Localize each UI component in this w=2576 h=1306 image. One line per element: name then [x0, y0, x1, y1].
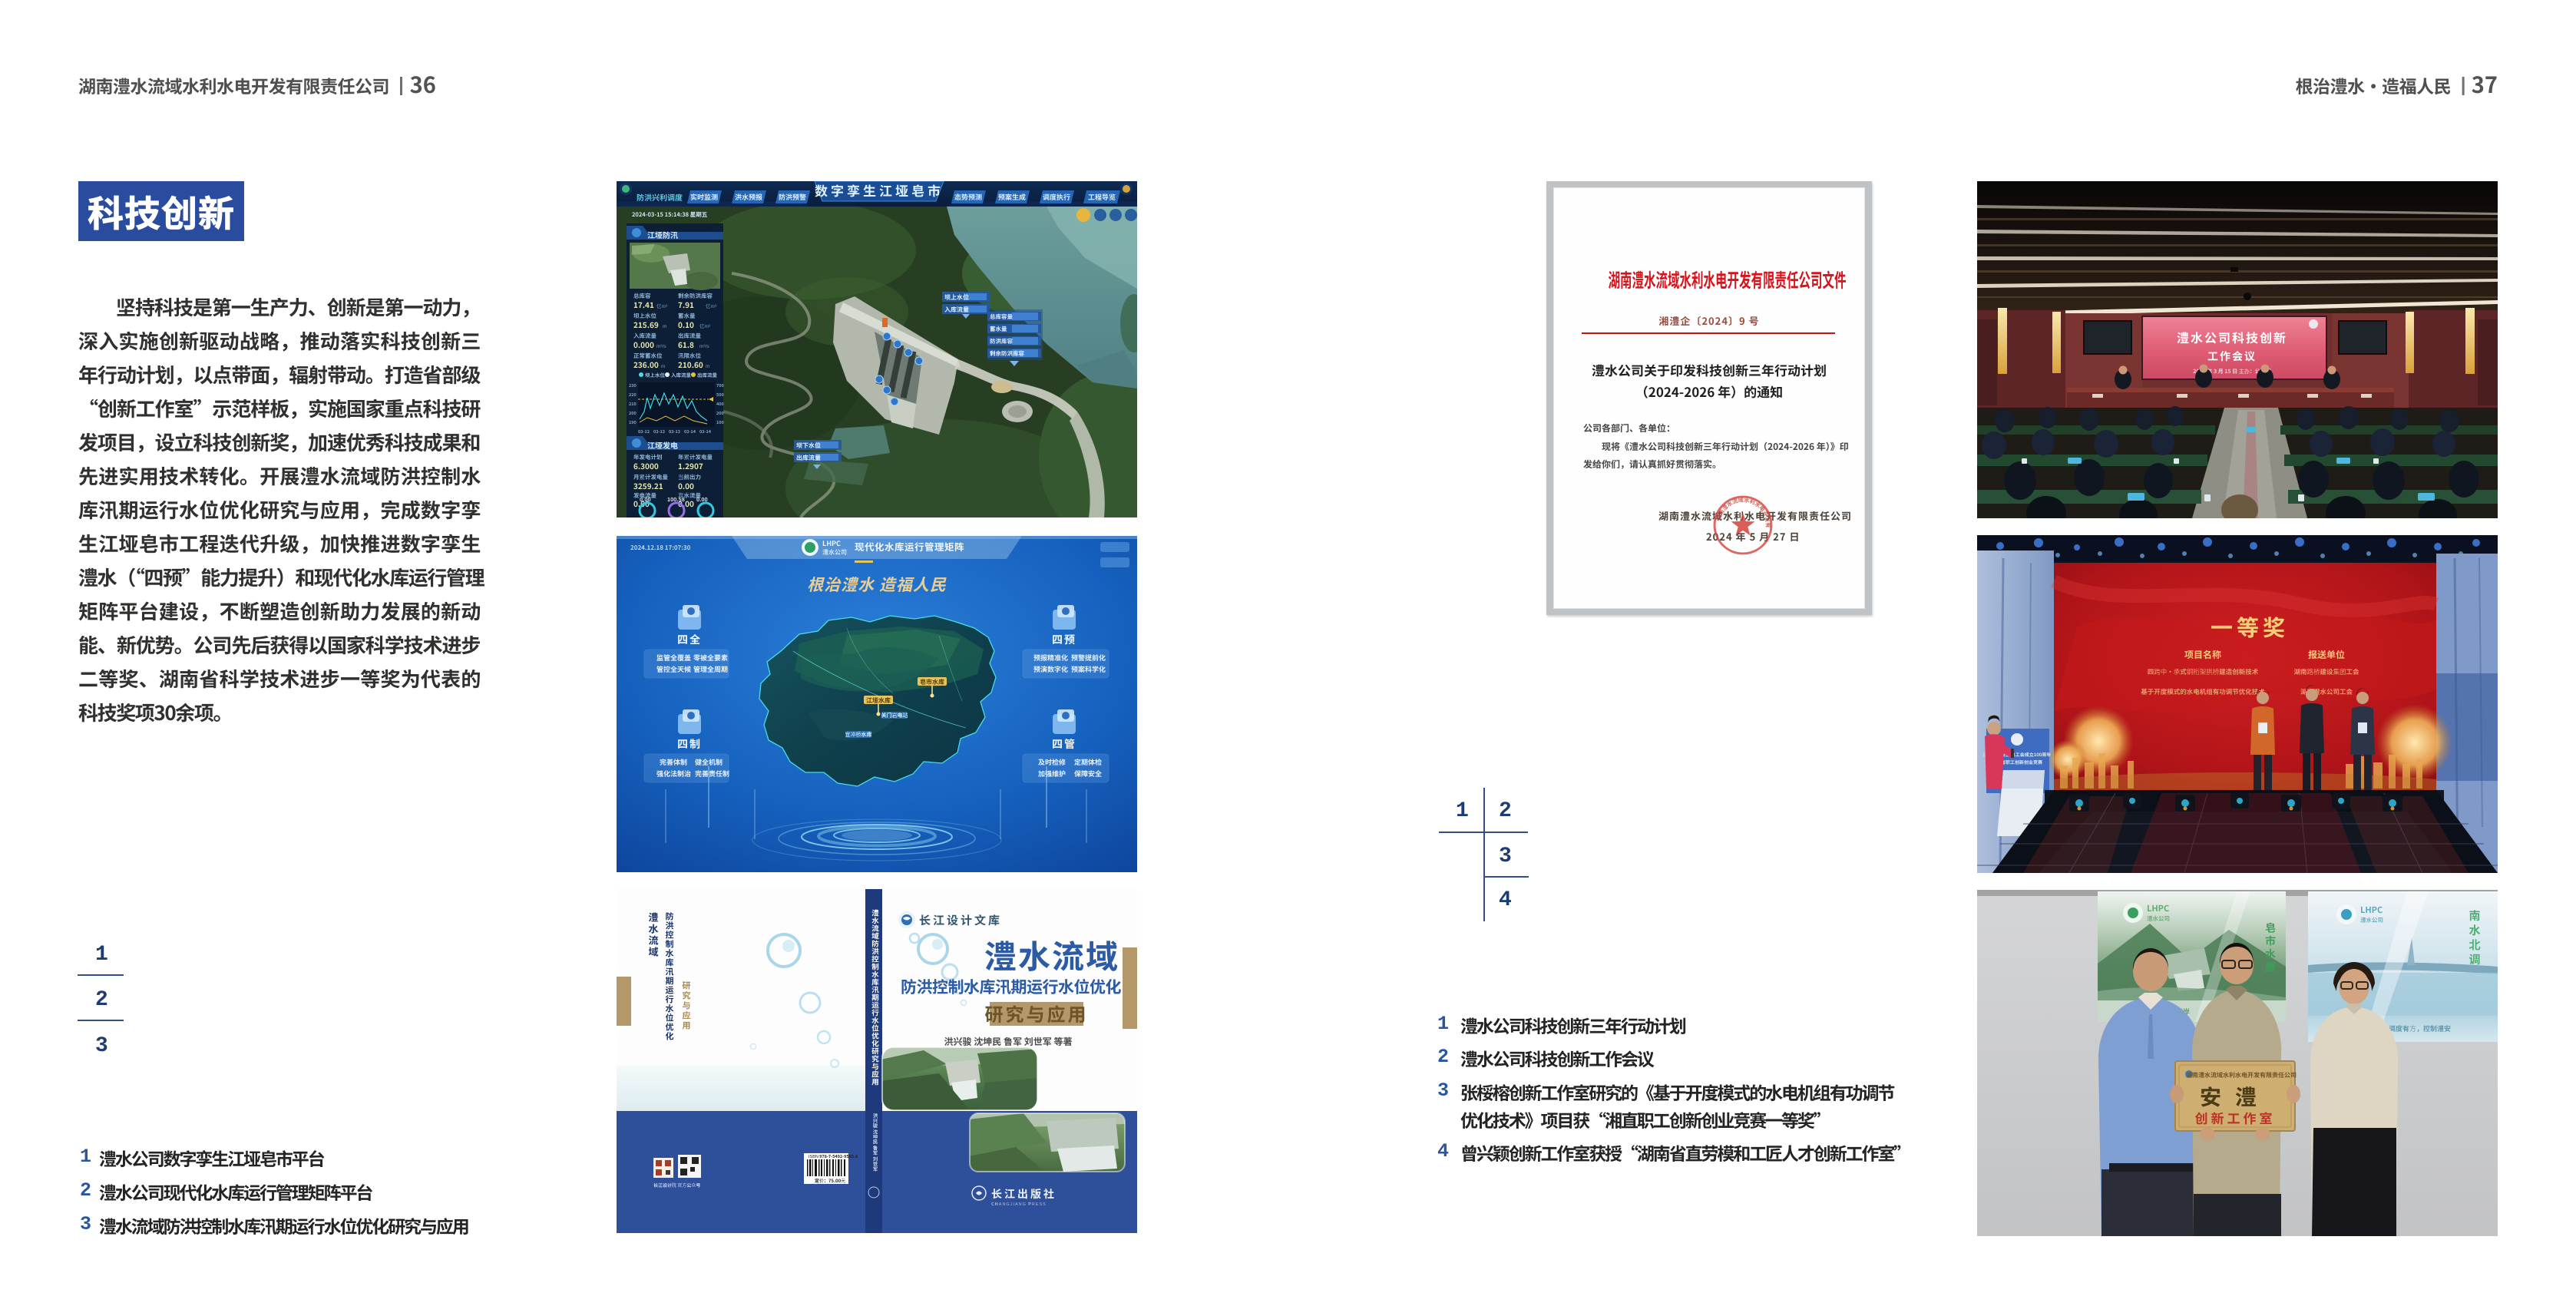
- svg-text:湖南澧水流域水利水电开发有限责任公司: 湖南澧水流域水利水电开发有限责任公司: [2186, 1071, 2297, 1080]
- svg-text:CHANGJIANG PRESS: CHANGJIANG PRESS: [991, 1201, 1047, 1207]
- svg-text:现代化水库运行管理矩阵: 现代化水库运行管理矩阵: [855, 539, 964, 554]
- svg-text:出库流量: 出库流量: [697, 371, 718, 379]
- svg-text:预案生成: 预案生成: [998, 192, 1026, 202]
- svg-text:400: 400: [716, 401, 724, 407]
- svg-text:宜冲桥水库: 宜冲桥水库: [845, 731, 872, 739]
- svg-text:态势预测: 态势预测: [954, 192, 982, 202]
- svg-text:澧水流域防洪控制水库汛期运行水位优化研究与应用: 澧水流域防洪控制水库汛期运行水位优化研究与应用: [870, 908, 881, 1086]
- svg-text:调度有方，控制澧安: 调度有方，控制澧安: [2389, 1023, 2451, 1033]
- svg-text:湖南路桥建设集团工会: 湖南路桥建设集团工会: [2293, 667, 2359, 676]
- svg-text:100: 100: [716, 419, 724, 425]
- svg-text:03-14: 03-14: [684, 428, 696, 435]
- svg-text:四制: 四制: [677, 736, 702, 752]
- svg-text:洪水预报: 洪水预报: [735, 192, 762, 202]
- svg-text:保障安全: 保障安全: [1074, 769, 1102, 779]
- svg-text:关门岩电站: 关门岩电站: [881, 712, 908, 719]
- svg-text:调度执行: 调度执行: [1043, 192, 1070, 202]
- svg-text:实时监测: 实时监测: [690, 192, 718, 202]
- svg-text:工程导览: 工程导览: [1088, 192, 1116, 202]
- svg-text:研究与应用: 研究与应用: [680, 981, 693, 1031]
- svg-text:入库流量: 入库流量: [671, 371, 692, 379]
- svg-text:剩余防洪库容: 剩余防洪库容: [990, 349, 1024, 358]
- svg-text:江垭防汛: 江垭防汛: [647, 229, 678, 240]
- svg-text:零被全要素: 零被全要素: [693, 653, 728, 663]
- svg-text:防洪兴利调度: 防洪兴利调度: [637, 191, 683, 203]
- svg-text:200: 200: [716, 410, 724, 416]
- svg-text:洪兴骏 沈坤民 鲁军 刘世军 等著: 洪兴骏 沈坤民 鲁军 刘世军 等著: [944, 1035, 1073, 1048]
- svg-text:210.60: 210.60: [678, 359, 703, 370]
- svg-text:预案科学化: 预案科学化: [1071, 664, 1106, 674]
- svg-text:LHPC: LHPC: [822, 538, 841, 548]
- svg-text:防洪预警: 防洪预警: [779, 192, 806, 202]
- svg-text:0.000: 0.000: [633, 339, 654, 350]
- svg-text:澧水公司科技创新: 澧水公司科技创新: [2177, 328, 2287, 346]
- svg-text:四管: 四管: [1052, 736, 1076, 752]
- svg-text:03-13: 03-13: [653, 428, 665, 435]
- svg-text:根治澧水 造福人民: 根治澧水 造福人民: [807, 573, 947, 596]
- svg-text:长江出版社: 长江出版社: [991, 1186, 1057, 1202]
- svg-text:完善体制: 完善体制: [660, 757, 687, 767]
- svg-text:定价：75.00元: 定价：75.00元: [815, 1177, 845, 1184]
- svg-text:蓄水量: 蓄水量: [990, 325, 1007, 333]
- svg-text:安澧: 安澧: [2200, 1081, 2270, 1112]
- svg-text:完善责任制: 完善责任制: [695, 769, 729, 779]
- svg-text:预演数字化: 预演数字化: [1033, 664, 1068, 674]
- svg-text:210: 210: [629, 401, 637, 407]
- svg-text:3259.21: 3259.21: [633, 480, 663, 491]
- svg-text:工作会议: 工作会议: [2207, 349, 2257, 364]
- svg-text:m³/s: m³/s: [656, 342, 666, 349]
- svg-text:出库流量: 出库流量: [796, 454, 821, 462]
- svg-text:澧水流域: 澧水流域: [984, 931, 1119, 978]
- svg-text:坝上水位: 坝上水位: [645, 371, 666, 379]
- svg-text:一等奖: 一等奖: [2211, 610, 2289, 643]
- svg-text:项目名称: 项目名称: [2184, 648, 2221, 661]
- svg-text:江垭水库: 江垭水库: [866, 696, 891, 705]
- svg-text:澧水公司: 澧水公司: [822, 548, 847, 557]
- svg-text:强化法制治: 强化法制治: [656, 769, 691, 779]
- svg-text:17.41: 17.41: [633, 299, 654, 310]
- svg-text:防洪控制水库汛期运行水位优化: 防洪控制水库汛期运行水位优化: [901, 975, 1121, 998]
- svg-text:亿m³: 亿m³: [706, 302, 717, 309]
- svg-text:长江设计文库: 长江设计文库: [919, 912, 1002, 928]
- svg-text:四预: 四预: [1052, 632, 1076, 647]
- svg-text:0.10: 0.10: [678, 319, 694, 330]
- svg-text:预警提前化: 预警提前化: [1071, 653, 1106, 663]
- svg-text:0.00: 0.00: [678, 480, 694, 491]
- svg-text:数字孪生江垭皂市: 数字孪生江垭皂市: [815, 181, 944, 200]
- svg-text:215.69: 215.69: [633, 319, 659, 330]
- svg-text:坝上水位: 坝上水位: [944, 293, 969, 302]
- svg-text:6.3000: 6.3000: [633, 460, 659, 471]
- svg-text:7.91: 7.91: [678, 299, 694, 310]
- svg-text:防洪控制水库汛期运行水位优化: 防洪控制水库汛期运行水位优化: [663, 912, 676, 1041]
- svg-text:61.8: 61.8: [678, 339, 694, 350]
- svg-text:预报精准化: 预报精准化: [1033, 653, 1068, 663]
- svg-text:监管全覆盖: 监管全覆盖: [656, 653, 691, 663]
- svg-text:四跨中·承式钢桁架拱桥建造创新技术: 四跨中·承式钢桁架拱桥建造创新技术: [2148, 667, 2259, 676]
- svg-text:皂市水库: 皂市水库: [920, 678, 944, 686]
- svg-text:四全: 四全: [677, 632, 702, 647]
- svg-text:LHPC: LHPC: [2147, 902, 2169, 914]
- svg-text:健全机制: 健全机制: [695, 757, 723, 767]
- svg-text:LHPC: LHPC: [2360, 904, 2383, 916]
- svg-text:亿m³: 亿m³: [699, 322, 711, 329]
- svg-text:研究与应用: 研究与应用: [985, 1000, 1089, 1027]
- svg-text:南水北调: 南水北调: [2467, 910, 2483, 968]
- svg-text:管理全周期: 管理全周期: [693, 664, 728, 674]
- svg-text:03-14: 03-14: [699, 428, 712, 435]
- svg-text:500: 500: [716, 392, 724, 398]
- svg-text:江垭发电: 江垭发电: [647, 439, 678, 451]
- svg-text:2024-03-15 15:14:38 星期五: 2024-03-15 15:14:38 星期五: [632, 210, 708, 219]
- svg-text:入库流量: 入库流量: [944, 306, 969, 314]
- svg-text:澧水流域: 澧水流域: [646, 911, 661, 958]
- svg-text:700: 700: [716, 382, 724, 388]
- svg-text:澧水公司: 澧水公司: [2147, 914, 2170, 923]
- svg-text:创新工作室: 创新工作室: [2195, 1108, 2276, 1127]
- svg-text:1.2907: 1.2907: [678, 460, 703, 471]
- svg-text:防洪库容: 防洪库容: [990, 337, 1013, 346]
- svg-text:220: 220: [629, 392, 637, 398]
- svg-text:230: 230: [629, 382, 637, 388]
- svg-text:236.00: 236.00: [633, 359, 659, 370]
- svg-text:m³/s: m³/s: [699, 342, 709, 349]
- svg-text:m: m: [663, 322, 666, 329]
- svg-text:190: 190: [629, 419, 637, 425]
- svg-text:基于开度模式的水电机组有功调节优化技术: 基于开度模式的水电机组有功调节优化技术: [2141, 687, 2265, 696]
- svg-text:及时检修: 及时检修: [1038, 757, 1066, 767]
- svg-text:m: m: [661, 362, 665, 369]
- svg-text:m: m: [706, 362, 709, 369]
- svg-text:亿m³: 亿m³: [656, 302, 668, 309]
- svg-text:澧水公司: 澧水公司: [2360, 916, 2383, 924]
- svg-text:定期体检: 定期体检: [1074, 757, 1102, 767]
- svg-text:坝下水位: 坝下水位: [796, 441, 821, 450]
- svg-text:加强维护: 加强维护: [1038, 769, 1066, 779]
- svg-text:长江设计院 官方公众号: 长江设计院 官方公众号: [653, 1182, 700, 1189]
- svg-text:总库容量: 总库容量: [990, 312, 1013, 321]
- svg-text:03-13: 03-13: [669, 428, 680, 435]
- svg-text:2024.12.18 17:07:30: 2024.12.18 17:07:30: [630, 544, 691, 552]
- svg-text:洪兴骏 沈坤民 鲁军 刘世军: 洪兴骏 沈坤民 鲁军 刘世军: [871, 1113, 879, 1172]
- svg-text:管控全天候: 管控全天候: [656, 664, 691, 674]
- svg-text:03-12: 03-12: [638, 428, 650, 435]
- svg-text:皂市水原: 皂市水原: [2263, 922, 2278, 974]
- svg-text:ISBN 978-7-5492-9565-8: ISBN 978-7-5492-9565-8: [809, 1153, 858, 1159]
- svg-text:报送单位: 报送单位: [2308, 648, 2345, 661]
- svg-text:200: 200: [629, 410, 637, 416]
